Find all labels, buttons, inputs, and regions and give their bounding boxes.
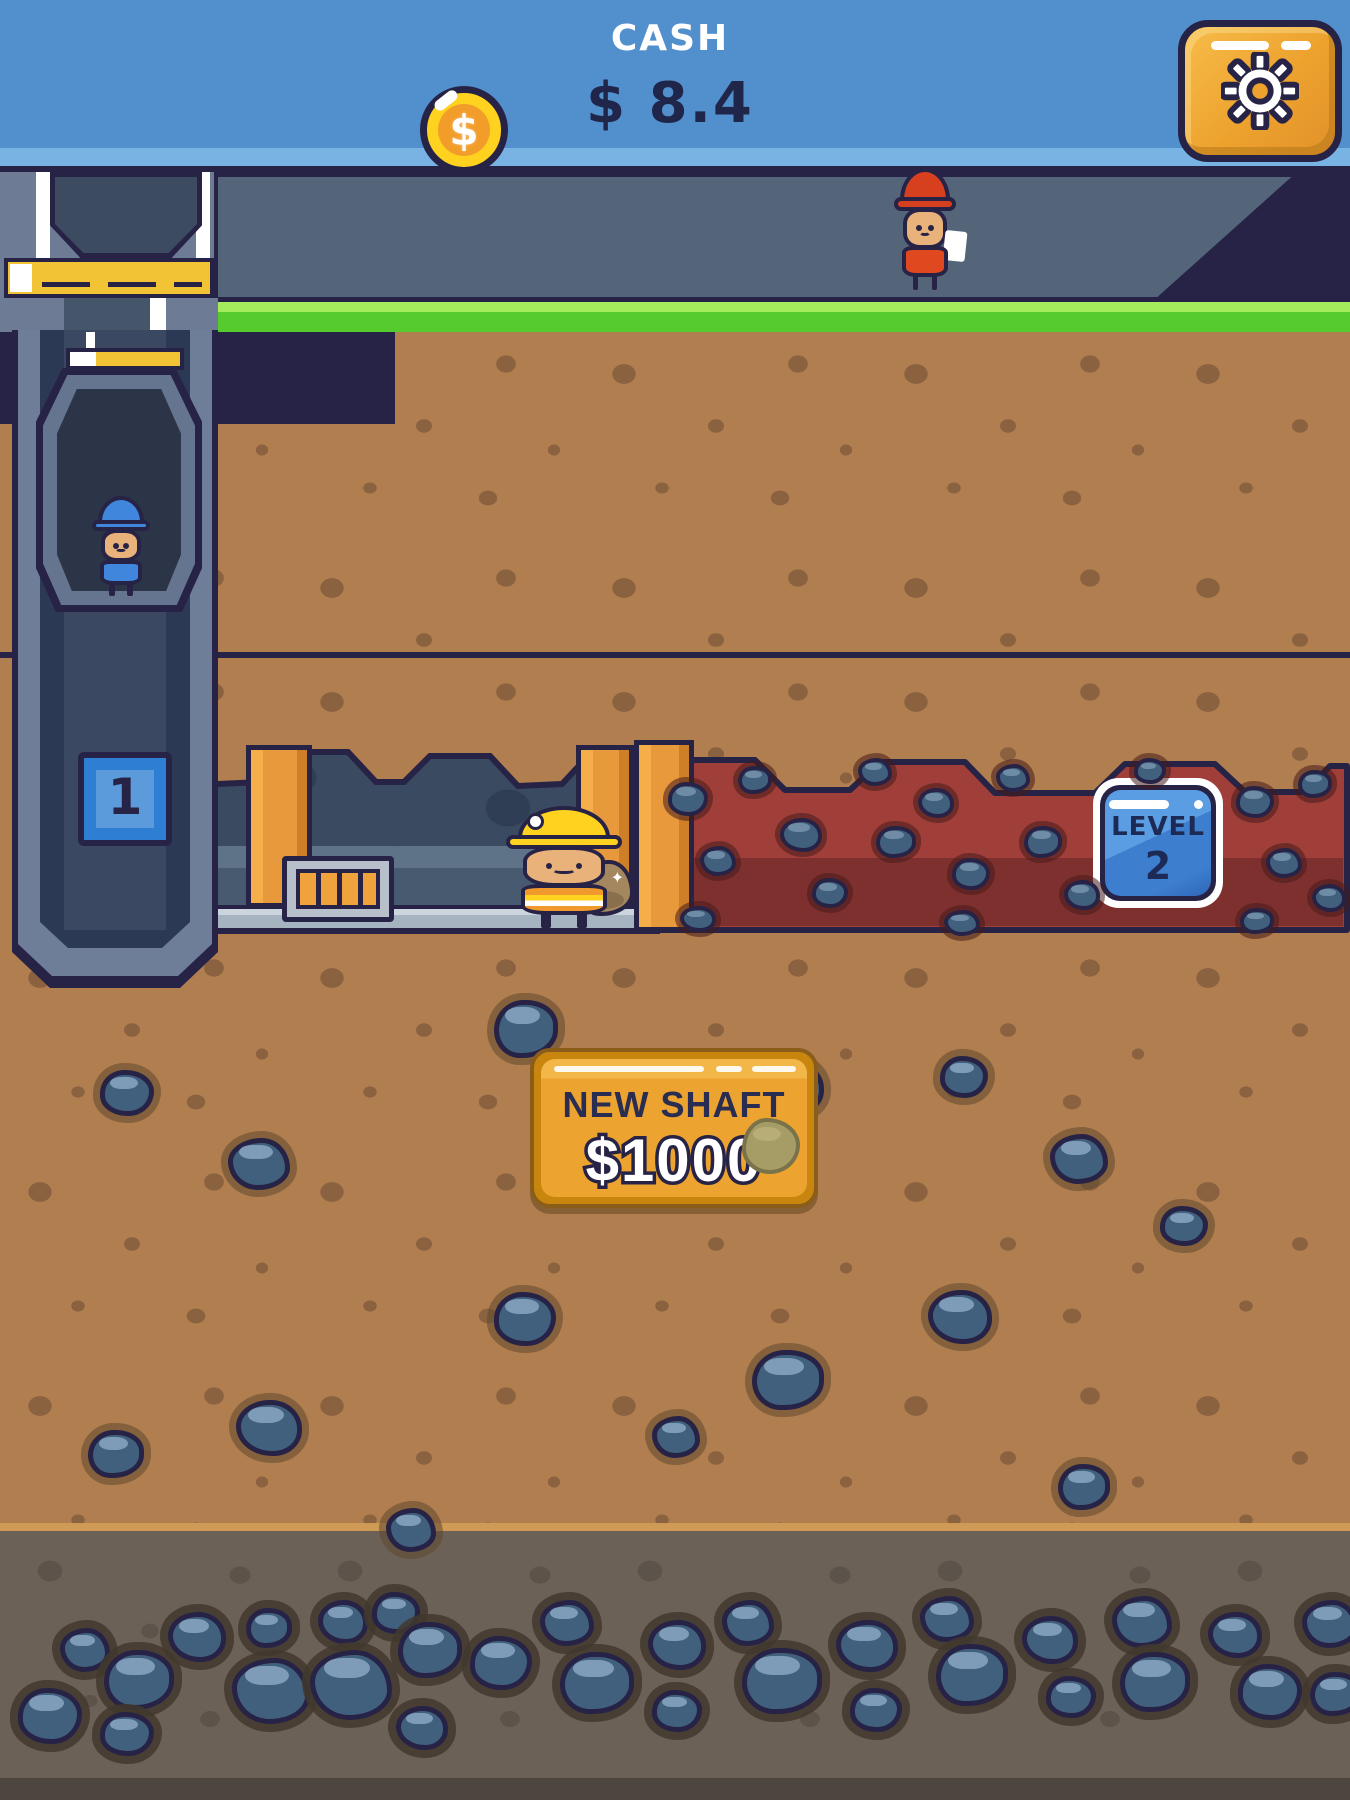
rock: [1050, 1134, 1108, 1184]
gear-icon: [1221, 52, 1299, 130]
ore-rock: [1240, 908, 1274, 934]
rock: [722, 1600, 774, 1646]
bottom-shadow-strip: [0, 1778, 1350, 1800]
ore-rock: [1064, 880, 1100, 910]
rock: [100, 1070, 154, 1116]
headframe-beam: [4, 258, 214, 298]
top-bar: $ CASH $ 8.4: [0, 0, 1350, 172]
settings-button[interactable]: [1178, 20, 1342, 162]
rock: [1022, 1616, 1078, 1664]
cash-display: CASH $ 8.4: [470, 18, 870, 136]
ore-rock: [952, 858, 990, 890]
rock: [168, 1612, 226, 1662]
rock: [18, 1688, 82, 1744]
rock: [310, 1650, 392, 1720]
ore-rock: [1298, 770, 1332, 798]
ore-rock: [1266, 848, 1302, 878]
rock: [232, 1658, 310, 1724]
ore-rock: [858, 758, 892, 786]
rock: [228, 1138, 290, 1190]
ore-rock: [668, 782, 708, 816]
cash-label: CASH: [470, 18, 870, 59]
rock: [494, 1292, 556, 1346]
ore-rock: [1024, 826, 1062, 858]
wood-support-post: [634, 740, 694, 932]
rock: [396, 1706, 448, 1750]
level-badge: LEVEL 2: [1093, 778, 1223, 908]
rock: [1046, 1676, 1096, 1718]
rock: [850, 1688, 902, 1732]
ore-rock: [876, 826, 916, 858]
rock-layer-top-edge: [0, 1523, 1350, 1531]
rock: [1112, 1596, 1172, 1648]
surface-worker-character: [894, 168, 956, 290]
rock: [1238, 1664, 1302, 1720]
rock: [936, 1644, 1008, 1706]
shaft-number: 1: [78, 768, 172, 826]
level-badge-number: 2: [1093, 844, 1223, 888]
ore-rock: [1312, 884, 1346, 912]
rock: [1160, 1206, 1208, 1246]
miner-face: [523, 846, 604, 886]
rock: [652, 1690, 702, 1732]
rock: [560, 1652, 634, 1714]
ore-rock: [1134, 758, 1166, 784]
ore-rock: [680, 906, 716, 932]
ore-rock: [700, 846, 736, 876]
elevator-shaft[interactable]: 1: [0, 172, 222, 988]
headframe-window: [50, 172, 202, 258]
rock: [386, 1508, 436, 1552]
rock: [398, 1622, 462, 1678]
ore-rock: [738, 766, 772, 794]
rock: [1120, 1652, 1190, 1712]
ore-rock: [812, 878, 848, 908]
level-badge-label: LEVEL: [1093, 812, 1223, 842]
ore-rock: [996, 764, 1030, 792]
rock: [540, 1600, 594, 1646]
elevator-cab[interactable]: [36, 368, 202, 612]
ore-rock: [1236, 786, 1274, 818]
supply-crate: [282, 856, 394, 922]
rock: [470, 1636, 532, 1690]
ore-rock: [918, 788, 954, 818]
miner-character: [506, 806, 622, 928]
rock: [1058, 1464, 1110, 1510]
rock: [652, 1416, 700, 1458]
cash-value: $ 8.4: [470, 71, 870, 136]
rock: [246, 1608, 292, 1648]
mine-shaft-level-1[interactable]: LEVEL 2: [218, 738, 1350, 934]
rock: [88, 1430, 144, 1478]
elevator-winch: [66, 348, 184, 370]
elevator-operator-character: [92, 496, 150, 596]
rock: [60, 1628, 110, 1672]
rock: [100, 1712, 154, 1756]
ore-rock: [780, 818, 822, 852]
rock: [318, 1600, 368, 1644]
new-shaft-button[interactable]: NEW SHAFT $1000: [530, 1048, 818, 1208]
rock: [742, 1648, 822, 1714]
rock: [836, 1620, 898, 1672]
rock: [752, 1350, 824, 1410]
game-screen: LEVEL 2 NEW SHAFT $1000: [0, 0, 1350, 1800]
rock: [1208, 1612, 1262, 1658]
rock: [920, 1596, 974, 1642]
rock: [1310, 1672, 1350, 1716]
rock: [940, 1056, 988, 1098]
shaft-number-badge: 1: [78, 752, 172, 846]
ore-rock: [944, 910, 980, 936]
rock: [648, 1620, 706, 1670]
rock: [104, 1650, 174, 1710]
